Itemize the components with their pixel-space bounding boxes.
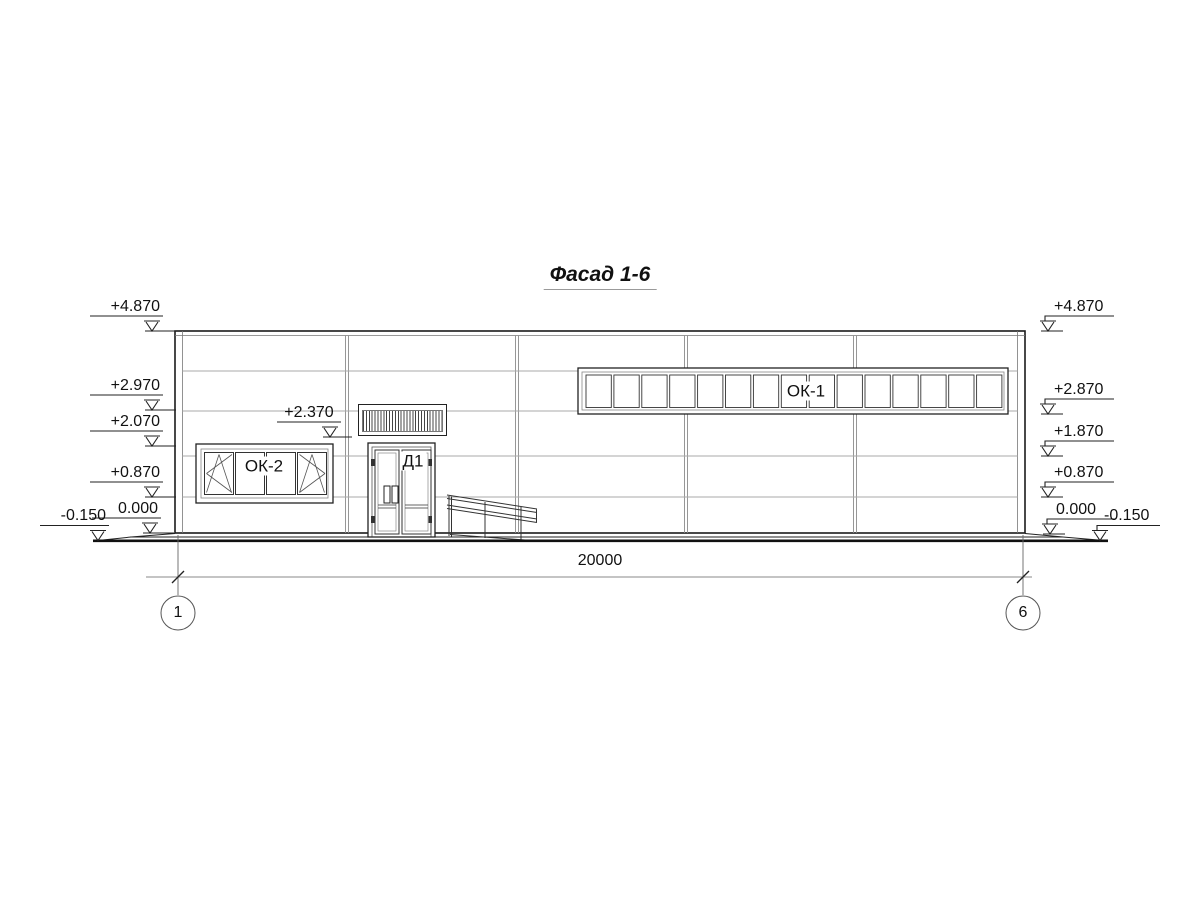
elevation-drawing-canvas: Фасад 1-6 +4.870 +2.970 +2.070 +0.870 0.…	[0, 0, 1200, 900]
louver-slats	[362, 410, 443, 432]
elevation-value-entrance-2370: +2.370	[284, 405, 333, 421]
drawing-linework	[0, 0, 1200, 900]
elevation-value-left-4870: +4.870	[111, 299, 160, 315]
elevation-value-right-minus0150: -0.150	[1104, 508, 1149, 524]
axis-number-6: 6	[1019, 605, 1028, 621]
elevation-value-left-2970: +2.970	[111, 378, 160, 394]
dimension-value-overall: 20000	[578, 553, 623, 569]
drawing-title: Фасад 1-6	[544, 264, 657, 290]
elevation-arrow-right-1870	[1040, 441, 1114, 456]
elevation-value-left-2070: +2.070	[111, 414, 160, 430]
label-door-d1: Д1	[400, 452, 427, 471]
elevation-arrow-right-4870	[1040, 316, 1114, 331]
elevation-value-right-1870: +1.870	[1054, 424, 1103, 440]
elevation-arrow-left-2970	[90, 395, 176, 410]
plinth-and-ground	[93, 534, 1108, 541]
elevation-arrow-left-2070	[90, 431, 176, 446]
label-window-ok2: ОК-2	[242, 457, 286, 476]
elevation-value-left-0870: +0.870	[111, 465, 160, 481]
axis-number-1: 1	[174, 605, 183, 621]
elevation-arrow-right-2870	[1040, 399, 1114, 414]
elevation-arrow-right-0870	[1040, 482, 1114, 497]
elevation-arrow-left-0870	[90, 482, 176, 497]
elevation-value-left-minus0150: -0.150	[61, 508, 106, 524]
elevation-arrow-right-minus0150	[1092, 526, 1160, 541]
elevation-value-right-0000: 0.000	[1056, 502, 1096, 518]
elevation-value-right-2870: +2.870	[1054, 382, 1103, 398]
elevation-arrow-left-minus0150	[40, 526, 109, 541]
elevation-value-right-4870: +4.870	[1054, 299, 1103, 315]
elevation-value-left-0000: 0.000	[118, 501, 158, 517]
elevation-arrow-left-4870	[90, 316, 176, 331]
label-window-ok1: ОК-1	[784, 382, 828, 401]
louver-grille	[358, 404, 447, 436]
dimension-assembly	[146, 535, 1040, 630]
elevation-value-right-0870: +0.870	[1054, 465, 1103, 481]
